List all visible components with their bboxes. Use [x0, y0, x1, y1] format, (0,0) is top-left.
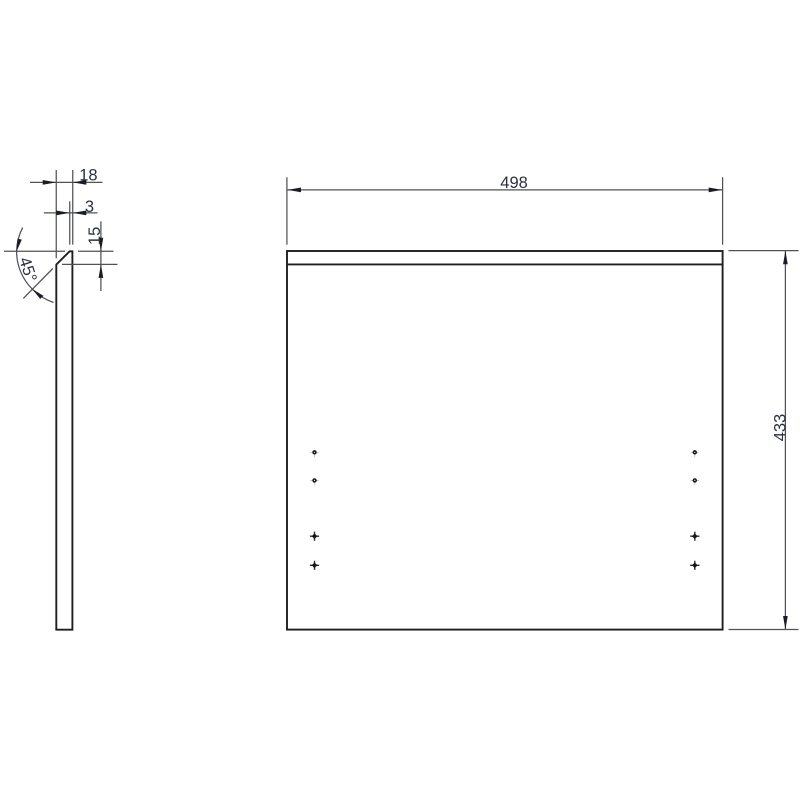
svg-text:18: 18	[79, 166, 97, 184]
svg-text:433: 433	[772, 414, 790, 442]
svg-text:3: 3	[85, 198, 94, 216]
svg-text:498: 498	[500, 174, 528, 192]
svg-text:15: 15	[86, 227, 104, 245]
